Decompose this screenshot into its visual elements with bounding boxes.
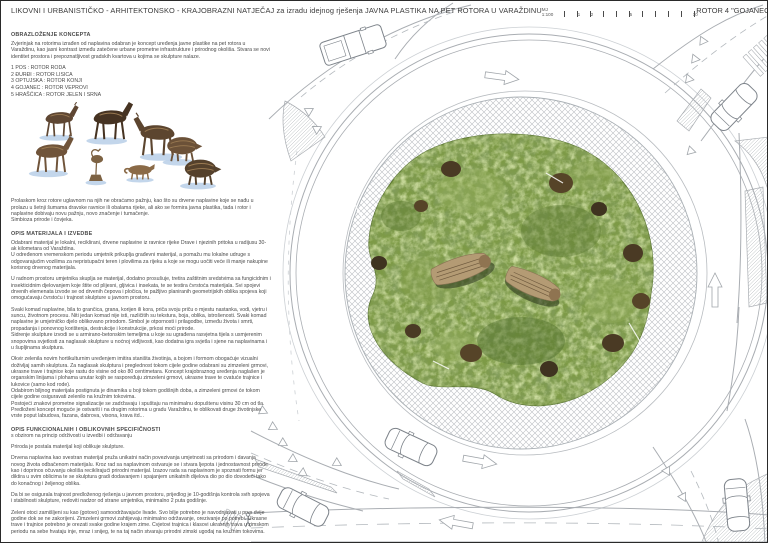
functional-paragraph-4: Zeleni otoci zamišljeni su kao (gotovo) … <box>11 510 271 535</box>
functional-paragraph-2: Drvena naplavina kao svestran materijal … <box>11 455 271 487</box>
sculpture-moose <box>134 113 183 161</box>
functional-subheading: s obzirom na princip održivosti u izvedb… <box>11 433 271 439</box>
text-column: OBRAZLOŽENJE KONCEPTA Zvjerinjak na roto… <box>11 25 271 539</box>
vehicle-car-ne <box>706 79 762 135</box>
crosswalk-ne <box>743 35 768 76</box>
scale-label: MJ 1:100 <box>542 7 560 17</box>
materials-paragraph-2: U radnom prostoru umjetnika skuplja se m… <box>11 276 271 301</box>
scale-tick-label-1: 1 <box>578 12 580 17</box>
scale-tick-label-5: 5 <box>630 12 632 17</box>
board-header: LIKOVNI I URBANISTIČKO - ARHITEKTONSKO -… <box>11 6 761 17</box>
intro-paragraph: Prolaskom kroz rotore uglavnom na njih n… <box>11 198 271 223</box>
rotor-list-item: 4 GOJANEC : ROTOR VEPROVI <box>11 85 271 92</box>
scale-bar: MJ 1:100 1 2 5 10 <box>542 6 689 17</box>
vehicle-car-sw-outer <box>274 483 333 531</box>
materials-paragraph-4: Okvir zelenila novim hortikulturnim uređ… <box>11 356 271 419</box>
sculpture-collage <box>11 102 271 194</box>
materials-paragraph-3: Svaki komad naplavine, bila to grančica,… <box>11 307 271 351</box>
section-heading-concept: OBRAZLOŽENJE KONCEPTA <box>11 32 271 38</box>
scale-tick-label-2: 2 <box>591 12 593 17</box>
functional-paragraph-1: Priroda je postala materijal koji obliku… <box>11 444 271 450</box>
sheet-title: ROTOR 4 "GOJANEC" <box>696 6 768 15</box>
sculpture-fox <box>125 164 155 182</box>
concept-paragraph: Zvjerinjak na rotorima izrađen od naplav… <box>11 41 271 60</box>
sculpture-stork <box>86 149 107 185</box>
rotor-list: 1 POS : ROTOR RODA 2 ĐURĐI : ROTOR LISIC… <box>11 65 271 98</box>
vehicle-truck <box>318 22 387 68</box>
rotor-list-item: 3 OPTUJSKA : ROTOR KONJI <box>11 78 271 85</box>
scale-bar-graphic: 1 2 5 10 <box>564 9 689 17</box>
rotor-list-item: 2 ĐURĐI : ROTOR LISICA <box>11 72 271 79</box>
board-title: LIKOVNI I URBANISTIČKO - ARHITEKTONSKO -… <box>11 6 542 15</box>
driftwood-animals-image <box>11 102 269 194</box>
sculpture-horse-left <box>39 102 78 141</box>
vehicle-car-sw-inner <box>382 424 441 471</box>
sculpture-horse-dark <box>86 102 133 145</box>
rotor-list-item: 5 HRAŠĆICA : ROTOR JELEN I SRNA <box>11 92 271 99</box>
functional-paragraph-3: Da bi se osigurala trajnost predloženog … <box>11 492 271 505</box>
section-heading-materials: OPIS MATERIJALA I IZVEDBE <box>11 231 271 237</box>
competition-board-page: LIKOVNI I URBANISTIČKO - ARHITEKTONSKO -… <box>0 0 768 543</box>
materials-paragraph-1: Odabrani materijal je lokalni, reciklira… <box>11 240 271 272</box>
central-green-island <box>353 134 653 406</box>
scale-tick-label-10: 10 <box>693 12 698 17</box>
rotor-list-item: 1 POS : ROTOR RODA <box>11 65 271 72</box>
